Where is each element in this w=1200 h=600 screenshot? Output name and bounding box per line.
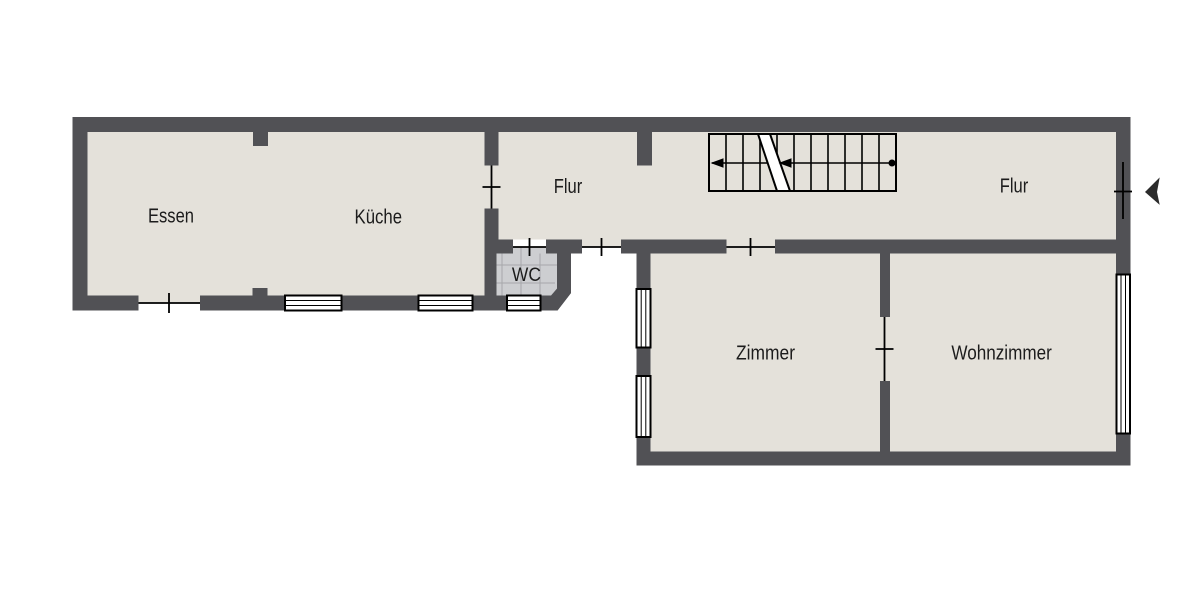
svg-text:Flur: Flur	[554, 176, 583, 198]
svg-text:Essen: Essen	[148, 206, 194, 228]
svg-text:Küche: Küche	[355, 206, 403, 228]
svg-text:WC: WC	[512, 265, 541, 286]
svg-text:Zimmer: Zimmer	[736, 343, 795, 365]
svg-text:Wohnzimmer: Wohnzimmer	[951, 342, 1052, 364]
svg-text:Flur: Flur	[1000, 176, 1029, 198]
